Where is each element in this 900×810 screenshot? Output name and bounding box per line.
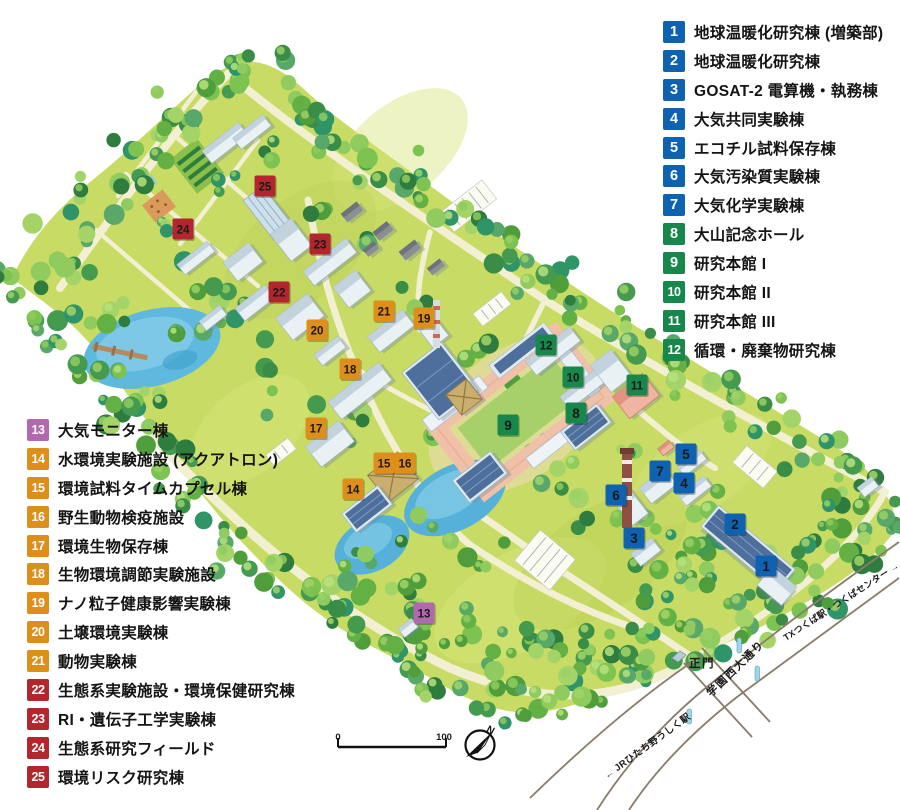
legend-badge-6: 6 — [663, 165, 685, 187]
map-marker-20: 20 — [307, 320, 329, 343]
svg-text:5: 5 — [682, 447, 690, 462]
legend-label-22: 生態系実験施設・環境保健研究棟 — [58, 679, 295, 701]
svg-text:24: 24 — [177, 225, 190, 237]
svg-text:20: 20 — [311, 326, 324, 338]
legend-label-13: 大気モニター棟 — [58, 419, 169, 441]
svg-text:10: 10 — [567, 373, 580, 385]
legend-badge-9: 9 — [663, 252, 685, 274]
svg-text:19: 19 — [418, 314, 431, 326]
legend-label-11: 研究本館 III — [694, 310, 776, 332]
legend-badge-24: 24 — [27, 737, 49, 759]
map-marker-25: 25 — [255, 176, 277, 199]
legend-item-3: 3GOSAT-2 電算機・執務棟 — [663, 79, 883, 101]
legend-label-14: 水環境実験施設 (アクアトロン) — [58, 448, 278, 470]
legend-left: 13大気モニター棟14水環境実験施設 (アクアトロン)15環境試料タイムカプセル… — [27, 419, 295, 795]
svg-text:17: 17 — [310, 424, 323, 436]
legend-badge-18: 18 — [27, 563, 49, 585]
legend-badge-19: 19 — [27, 592, 49, 614]
legend-badge-5: 5 — [663, 137, 685, 159]
map-marker-10: 10 — [563, 367, 585, 390]
map-marker-22: 22 — [269, 282, 291, 305]
map-marker-6: 6 — [606, 485, 628, 508]
map-marker-19: 19 — [414, 308, 436, 331]
legend-badge-14: 14 — [27, 448, 49, 470]
legend-item-24: 24生態系研究フィールド — [27, 737, 295, 759]
map-marker-4: 4 — [674, 473, 696, 496]
legend-label-21: 動物実験棟 — [58, 650, 137, 672]
svg-text:23: 23 — [314, 240, 327, 252]
legend-label-2: 地球温暖化研究棟 — [694, 50, 820, 72]
legend-badge-11: 11 — [663, 310, 685, 332]
legend-item-16: 16野生動物検疫施設 — [27, 506, 295, 528]
svg-text:14: 14 — [347, 485, 360, 497]
legend-item-2: 2地球温暖化研究棟 — [663, 50, 883, 72]
legend-item-8: 8大山記念ホール — [663, 223, 883, 245]
legend-label-1: 地球温暖化研究棟 (増築部) — [694, 21, 883, 43]
map-marker-8: 8 — [566, 403, 588, 426]
map-marker-12: 12 — [536, 335, 558, 358]
legend-item-9: 9研究本館 I — [663, 252, 883, 274]
legend-label-18: 生物環境調節実験施設 — [58, 563, 216, 585]
svg-text:25: 25 — [259, 182, 272, 194]
svg-text:18: 18 — [344, 365, 357, 377]
svg-text:12: 12 — [540, 341, 553, 353]
legend-label-7: 大気化学実験棟 — [694, 194, 805, 216]
legend-item-6: 6大気汚染質実験棟 — [663, 165, 883, 187]
legend-label-20: 土壌環境実験棟 — [58, 621, 169, 643]
svg-text:11: 11 — [631, 381, 644, 393]
map-marker-21: 21 — [374, 301, 396, 324]
legend-item-23: 23RI・遺伝子工学実験棟 — [27, 708, 295, 730]
legend-label-4: 大気共同実験棟 — [694, 108, 805, 130]
legend-label-9: 研究本館 I — [694, 252, 766, 274]
legend-badge-25: 25 — [27, 766, 49, 788]
svg-text:7: 7 — [656, 464, 664, 479]
svg-text:13: 13 — [418, 609, 431, 621]
legend-item-5: 5エコチル試料保存棟 — [663, 137, 883, 159]
map-marker-7: 7 — [650, 461, 672, 484]
legend-item-14: 14水環境実験施設 (アクアトロン) — [27, 448, 295, 470]
legend-item-7: 7大気化学実験棟 — [663, 194, 883, 216]
legend-badge-8: 8 — [663, 223, 685, 245]
legend-badge-13: 13 — [27, 419, 49, 441]
svg-text:16: 16 — [399, 459, 412, 471]
scale-bar: 0 100 — [335, 732, 452, 747]
legend-label-3: GOSAT-2 電算機・執務棟 — [694, 79, 878, 101]
legend-label-8: 大山記念ホール — [694, 223, 805, 245]
map-marker-16: 16 — [395, 453, 417, 476]
legend-label-10: 研究本館 II — [694, 281, 771, 303]
legend-item-12: 12循環・廃棄物研究棟 — [663, 339, 883, 361]
map-marker-9: 9 — [498, 415, 520, 438]
legend-item-10: 10研究本館 II — [663, 281, 883, 303]
legend-label-15: 環境試料タイムカプセル棟 — [58, 477, 247, 499]
legend-badge-1: 1 — [663, 21, 685, 43]
legend-badge-12: 12 — [663, 339, 685, 361]
legend-badge-7: 7 — [663, 194, 685, 216]
legend-label-24: 生態系研究フィールド — [58, 737, 216, 759]
road-label-jr: ← JRひたち野うしく駅 — [602, 711, 693, 781]
svg-text:9: 9 — [504, 418, 512, 433]
legend-item-17: 17環境生物保存棟 — [27, 535, 295, 557]
legend-item-25: 25環境リスク研究棟 — [27, 766, 295, 788]
legend-badge-16: 16 — [27, 506, 49, 528]
legend-item-11: 11研究本館 III — [663, 310, 883, 332]
legend-label-6: 大気汚染質実験棟 — [694, 165, 820, 187]
legend-label-17: 環境生物保存棟 — [58, 535, 169, 557]
map-marker-18: 18 — [340, 359, 362, 382]
map-marker-11: 11 — [627, 375, 649, 398]
svg-text:3: 3 — [630, 531, 638, 546]
legend-item-1: 1地球温暖化研究棟 (増築部) — [663, 21, 883, 43]
scale-end-label: 100 — [436, 732, 452, 743]
legend-badge-15: 15 — [27, 477, 49, 499]
map-marker-15: 15 — [374, 453, 396, 476]
legend-label-12: 循環・廃棄物研究棟 — [694, 339, 836, 361]
legend-badge-17: 17 — [27, 535, 49, 557]
legend-badge-10: 10 — [663, 281, 685, 303]
svg-text:2: 2 — [731, 517, 739, 532]
map-marker-14: 14 — [343, 479, 365, 502]
legend-badge-21: 21 — [27, 650, 49, 672]
legend-label-5: エコチル試料保存棟 — [694, 137, 836, 159]
gate-label: 正門 — [689, 657, 715, 670]
legend-badge-2: 2 — [663, 50, 685, 72]
legend-badge-3: 3 — [663, 79, 685, 101]
svg-text:4: 4 — [680, 476, 688, 491]
svg-text:15: 15 — [378, 459, 391, 471]
svg-text:6: 6 — [612, 488, 620, 503]
legend-label-16: 野生動物検疫施設 — [58, 506, 184, 528]
map-marker-3: 3 — [624, 528, 646, 551]
map-marker-23: 23 — [310, 234, 332, 257]
map-marker-2: 2 — [725, 514, 747, 537]
campus-map-page: 正門 学園西大通り TXつくば駅・つくばセンター → ← JRひたち野うしく駅 … — [0, 0, 900, 810]
map-marker-17: 17 — [306, 418, 328, 441]
svg-text:1: 1 — [762, 559, 770, 574]
legend-label-25: 環境リスク研究棟 — [58, 766, 184, 788]
legend-label-23: RI・遺伝子工学実験棟 — [58, 708, 216, 730]
map-marker-5: 5 — [676, 444, 698, 467]
legend-item-18: 18生物環境調節実験施設 — [27, 563, 295, 585]
legend-item-13: 13大気モニター棟 — [27, 419, 295, 441]
legend-right: 1地球温暖化研究棟 (増築部)2地球温暖化研究棟3GOSAT-2 電算機・執務棟… — [663, 21, 883, 368]
legend-item-20: 20土壌環境実験棟 — [27, 621, 295, 643]
map-marker-13: 13 — [414, 603, 436, 626]
legend-item-21: 21動物実験棟 — [27, 650, 295, 672]
legend-item-19: 19ナノ粒子健康影響実験棟 — [27, 592, 295, 614]
legend-item-22: 22生態系実験施設・環境保健研究棟 — [27, 679, 295, 701]
compass-icon: N — [466, 723, 497, 759]
map-marker-1: 1 — [756, 556, 778, 579]
legend-badge-22: 22 — [27, 679, 49, 701]
legend-badge-20: 20 — [27, 621, 49, 643]
svg-text:21: 21 — [378, 307, 391, 319]
map-marker-24: 24 — [173, 219, 195, 242]
legend-item-15: 15環境試料タイムカプセル棟 — [27, 477, 295, 499]
svg-text:8: 8 — [572, 406, 580, 421]
legend-badge-23: 23 — [27, 708, 49, 730]
legend-item-4: 4大気共同実験棟 — [663, 108, 883, 130]
legend-label-19: ナノ粒子健康影響実験棟 — [58, 592, 231, 614]
legend-badge-4: 4 — [663, 108, 685, 130]
svg-text:22: 22 — [273, 288, 286, 300]
